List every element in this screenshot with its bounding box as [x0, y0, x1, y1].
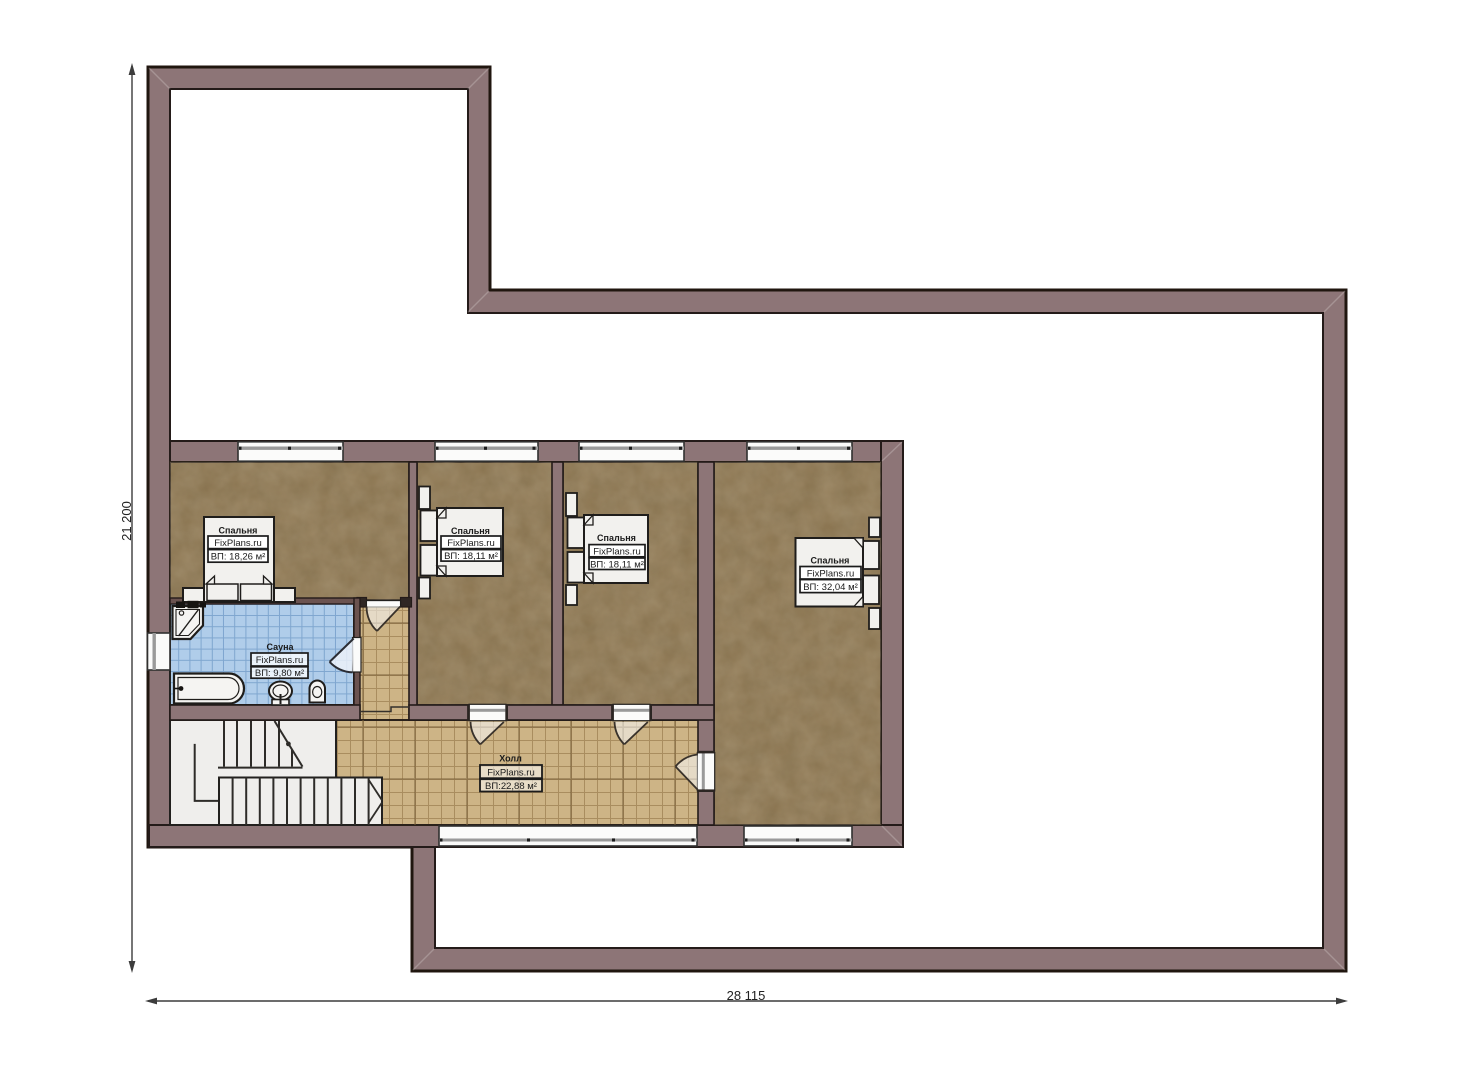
svg-text:28 115: 28 115 — [727, 988, 766, 1003]
svg-text:ВП:22,88 м²: ВП:22,88 м² — [485, 781, 537, 792]
svg-text:Спальня: Спальня — [219, 526, 258, 536]
svg-text:FixPlans.ru: FixPlans.ru — [214, 538, 262, 549]
svg-text:Сауна: Сауна — [266, 642, 294, 652]
svg-text:FixPlans.ru: FixPlans.ru — [487, 767, 535, 778]
svg-text:Спальня: Спальня — [451, 526, 490, 536]
svg-text:ВП: 18,11 м²: ВП: 18,11 м² — [590, 559, 644, 570]
svg-text:ВП: 32,04 м²: ВП: 32,04 м² — [803, 582, 858, 593]
svg-text:ВП: 18,26 м²: ВП: 18,26 м² — [211, 552, 266, 563]
svg-text:FixPlans.ru: FixPlans.ru — [256, 655, 304, 666]
svg-text:Спальня: Спальня — [811, 556, 850, 566]
svg-text:FixPlans.ru: FixPlans.ru — [593, 546, 641, 557]
svg-text:Холл: Холл — [499, 754, 522, 764]
svg-text:FixPlans.ru: FixPlans.ru — [807, 568, 855, 579]
svg-text:ВП: 9,80 м²: ВП: 9,80 м² — [255, 668, 304, 679]
svg-text:Спальня: Спальня — [597, 533, 636, 543]
svg-text:FixPlans.ru: FixPlans.ru — [447, 538, 495, 549]
svg-text:ВП: 18,11 м²: ВП: 18,11 м² — [444, 551, 498, 562]
svg-text:21 200: 21 200 — [119, 501, 134, 541]
